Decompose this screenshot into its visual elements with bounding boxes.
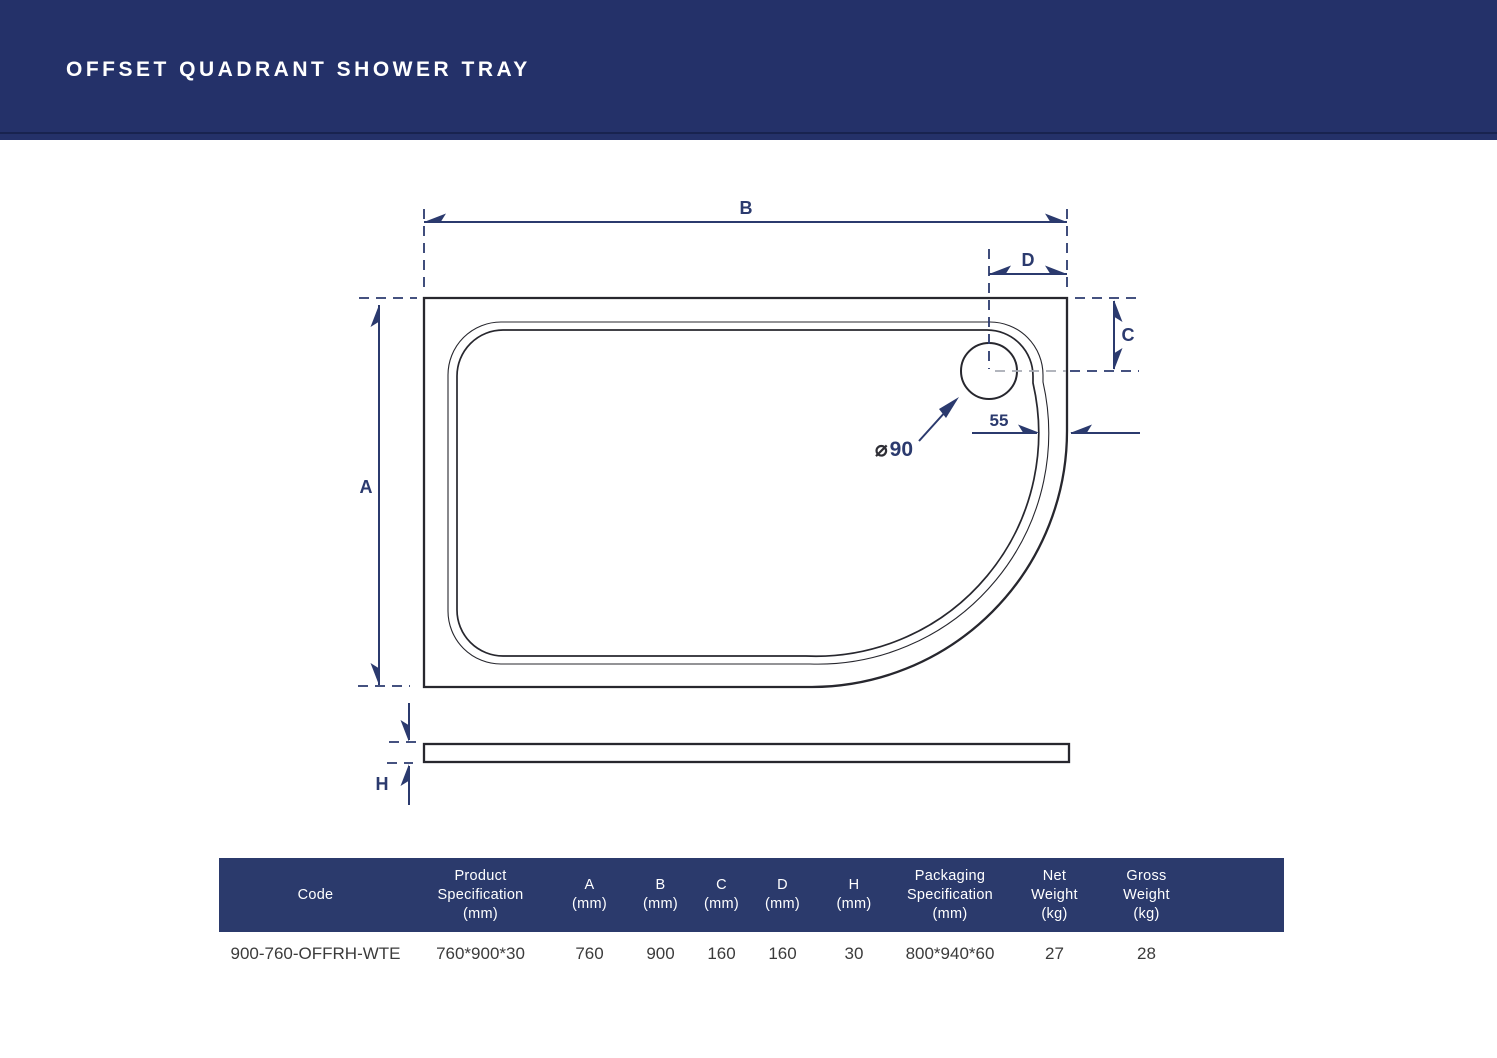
arrowhead-left <box>424 214 446 223</box>
arrowhead-up <box>1114 300 1123 322</box>
dimension-h: H <box>376 703 422 805</box>
cell-a: 760 <box>549 944 630 964</box>
arrowhead-up <box>371 305 380 327</box>
col-header-packaging-spec: Packaging Specification (mm) <box>895 867 1005 924</box>
col-header-d: D (mm) <box>752 876 813 914</box>
cell-packaging-spec: 800*940*60 <box>895 944 1005 964</box>
spec-table: Code Product Specification (mm) A (mm) B… <box>219 858 1284 972</box>
header-line: (mm) <box>691 895 752 914</box>
header-line: Packaging <box>895 867 1005 886</box>
spec-table-header: Code Product Specification (mm) A (mm) B… <box>219 858 1284 932</box>
cell-h: 30 <box>813 944 895 964</box>
header-line: Specification <box>412 886 549 905</box>
col-header-gross-weight: Gross Weight (kg) <box>1104 867 1189 924</box>
header-line: Gross <box>1104 867 1189 886</box>
dim-label-55: 55 <box>990 411 1009 430</box>
cell-product-spec: 760*900*30 <box>412 944 549 964</box>
cell-code: 900-760-OFFRH-WTE <box>219 944 412 964</box>
arrowhead-down <box>1114 348 1123 370</box>
header-line: (kg) <box>1005 905 1104 924</box>
tray-side-view <box>424 744 1069 762</box>
header-line: (mm) <box>549 895 630 914</box>
cell-net-weight: 27 <box>1005 944 1104 964</box>
col-header-c: C (mm) <box>691 876 752 914</box>
header-line: B <box>630 876 691 895</box>
col-header-b: B (mm) <box>630 876 691 914</box>
dim-label-d: D <box>1022 250 1035 270</box>
side-profile <box>424 744 1069 762</box>
arrowhead-down <box>401 720 410 742</box>
cell-d: 160 <box>752 944 813 964</box>
dimension-b: B <box>424 198 1067 294</box>
col-header-h: H (mm) <box>813 876 895 914</box>
header-line: A <box>549 876 630 895</box>
drain-label: ⌀90 <box>875 438 913 461</box>
cell-b: 900 <box>630 944 691 964</box>
dim-label-a: A <box>360 477 373 497</box>
header-line: C <box>691 876 752 895</box>
arrowhead-right <box>1045 266 1067 275</box>
col-header-a: A (mm) <box>549 876 630 914</box>
diameter-symbol: ⌀ <box>875 438 888 461</box>
arrowhead-left <box>1070 425 1092 434</box>
col-header-net-weight: Net Weight (kg) <box>1005 867 1104 924</box>
cell-c: 160 <box>691 944 752 964</box>
arrowhead-down <box>371 663 380 685</box>
header-line: (kg) <box>1104 905 1189 924</box>
dim-label-c: C <box>1122 325 1135 345</box>
header-line: (mm) <box>895 905 1005 924</box>
header-line: Code <box>219 886 412 905</box>
diameter-value: 90 <box>890 438 913 461</box>
tray-top-view <box>424 298 1067 687</box>
header-line: D <box>752 876 813 895</box>
header-line: (mm) <box>630 895 691 914</box>
header-line: Net <box>1005 867 1104 886</box>
header-line: H <box>813 876 895 895</box>
table-row: 900-760-OFFRH-WTE 760*900*30 760 900 160… <box>219 936 1284 972</box>
col-header-code: Code <box>219 886 412 905</box>
header-line: Weight <box>1005 886 1104 905</box>
header-line: Specification <box>895 886 1005 905</box>
cell-gross-weight: 28 <box>1104 944 1189 964</box>
arrowhead-right <box>1045 214 1067 223</box>
dim-label-h: H <box>376 774 389 794</box>
dim-label-b: B <box>740 198 753 218</box>
header-line: Weight <box>1104 886 1189 905</box>
dimension-a: A <box>358 298 417 686</box>
header-line: Product <box>412 867 549 886</box>
col-header-product-spec: Product Specification (mm) <box>412 867 549 924</box>
arrowhead-up <box>401 764 410 786</box>
arrowhead-left <box>989 266 1011 275</box>
header-line: (mm) <box>813 895 895 914</box>
header-line: (mm) <box>412 905 549 924</box>
header-line: (mm) <box>752 895 813 914</box>
